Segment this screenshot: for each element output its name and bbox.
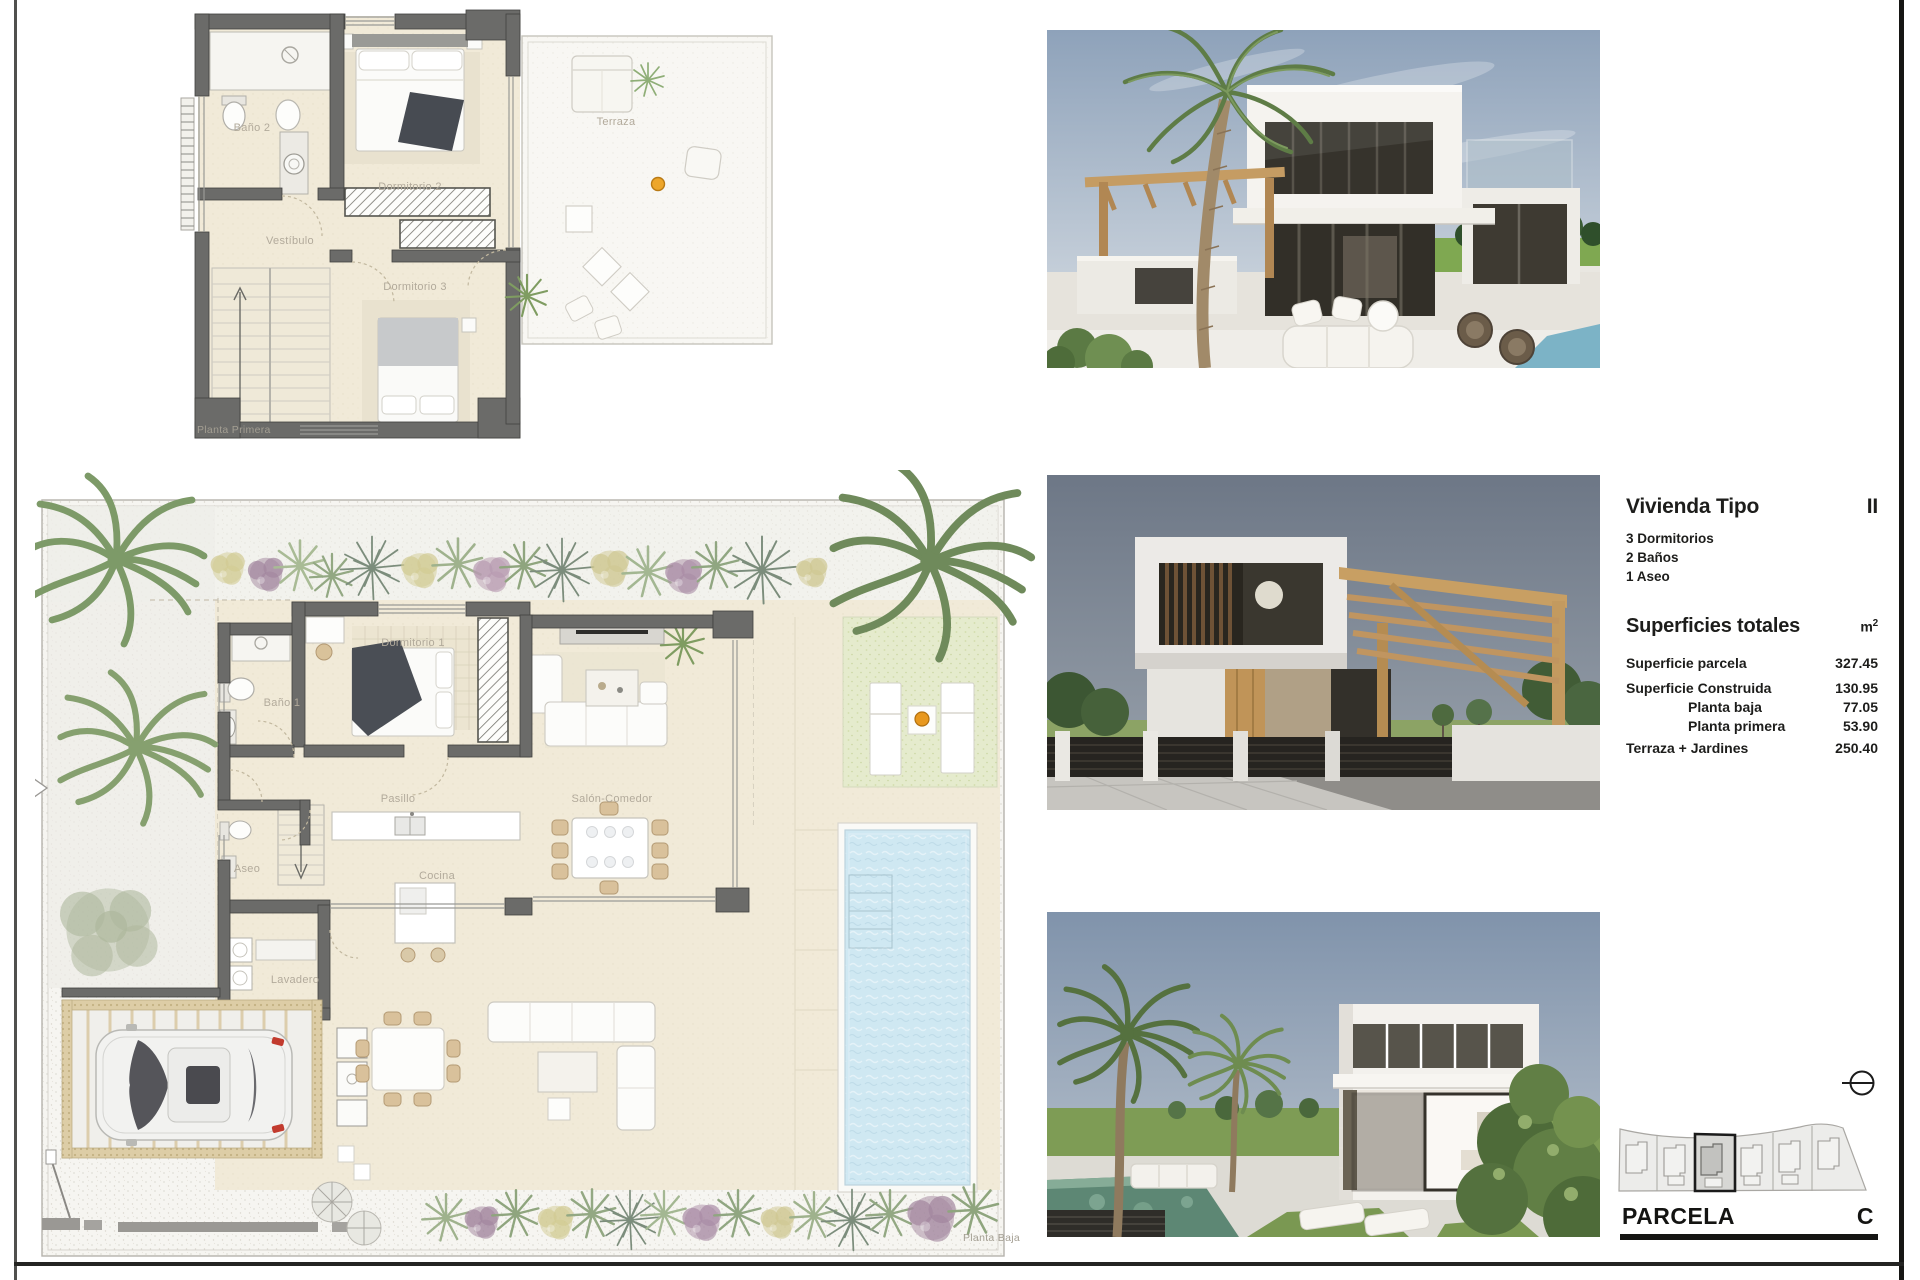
room-label-vestibulo: Vestíbulo <box>266 235 314 247</box>
carport-pergola <box>62 1000 367 1158</box>
vivienda-tipo-title: Vivienda Tipo <box>1626 495 1759 519</box>
bed-dormitorio3 <box>362 300 476 422</box>
tv-unit <box>560 626 664 644</box>
room-label-lavadero: Lavadero <box>271 974 319 986</box>
vivienda-tipo-value: II <box>1867 495 1878 519</box>
room-label-bano1: Baño 1 <box>264 697 301 709</box>
room-label-aseo: Aseo <box>234 863 260 875</box>
car-top-view <box>96 1024 292 1146</box>
surfaces-table: Superficie parcela327.45 Superficie Cons… <box>1626 653 1878 758</box>
feature-banos: 2 Baños <box>1626 548 1878 567</box>
surfaces-title: Superficies totales <box>1626 615 1800 638</box>
exterior-render-street-dusk <box>1047 475 1600 810</box>
room-label-dormitorio1: Dormitorio 1 <box>381 637 445 649</box>
drinks-tray <box>915 712 929 726</box>
room-label-bano2: Baño 2 <box>234 122 271 134</box>
page-border-left <box>14 0 17 1280</box>
surfaces-unit: m2 <box>1860 618 1878 635</box>
page-border-bottom <box>14 1262 1904 1266</box>
north-icon <box>1842 1072 1874 1095</box>
caption-planta-primera: Planta Primera <box>197 424 271 436</box>
info-panel: Vivienda Tipo II 3 Dormitorios 2 Baños 1… <box>1626 495 1878 758</box>
parcela-value: C <box>1857 1203 1874 1230</box>
exterior-render-terrace-day <box>1047 30 1600 368</box>
room-label-dormitorio3: Dormitorio 3 <box>383 281 447 293</box>
room-label-terraza: Terraza <box>597 116 636 128</box>
table-row: Planta primera53.90 <box>1626 717 1878 736</box>
pool <box>838 823 977 1192</box>
parcela-site-plan <box>1610 1062 1900 1202</box>
bed-dormitorio2 <box>338 34 482 164</box>
site-plan <box>1619 1124 1866 1191</box>
parcela-label: PARCELA <box>1622 1203 1735 1230</box>
feature-aseo: 1 Aseo <box>1626 567 1878 586</box>
room-label-cocina: Cocina <box>419 870 456 882</box>
page-border-right <box>1899 0 1904 1280</box>
lawn-loungers <box>843 617 997 787</box>
table-row: Terraza + Jardines250.40 <box>1626 738 1878 758</box>
floor-plan-planta-primera: Baño 2 Vestíbulo Dormitorio 2 Dormitorio… <box>178 8 778 444</box>
parcela-underline <box>1620 1234 1878 1240</box>
wardrobe-dorm1 <box>478 618 508 742</box>
exterior-render-garden-pool <box>1047 912 1600 1237</box>
table-row: Superficie Construida130.95 <box>1626 678 1878 698</box>
plan-sheet-page: Baño 2 Vestíbulo Dormitorio 2 Dormitorio… <box>0 0 1920 1280</box>
room-label-pasillo: Pasillo <box>381 793 416 805</box>
parcela-label-row: PARCELA C <box>1622 1203 1874 1230</box>
feature-list: 3 Dormitorios 2 Baños 1 Aseo <box>1626 529 1878 586</box>
sofa <box>545 702 667 746</box>
floor-plan-planta-baja: Baño 1 Dormitorio 1 Pasillo Aseo Cocina … <box>35 470 1045 1260</box>
louver-strip <box>181 98 194 230</box>
caption-planta-baja: Planta Baja <box>963 1232 1020 1244</box>
table-row: Superficie parcela327.45 <box>1626 653 1878 673</box>
feature-dormitorios: 3 Dormitorios <box>1626 529 1878 548</box>
orange-plant <box>652 178 665 191</box>
room-label-salon: Salón-Comedor <box>572 793 653 805</box>
table-row: Planta baja77.05 <box>1626 698 1878 717</box>
coffee-table <box>586 670 638 706</box>
room-label-dormitorio2: Dormitorio 2 <box>378 181 442 193</box>
outdoor-kitchen <box>1077 256 1237 314</box>
